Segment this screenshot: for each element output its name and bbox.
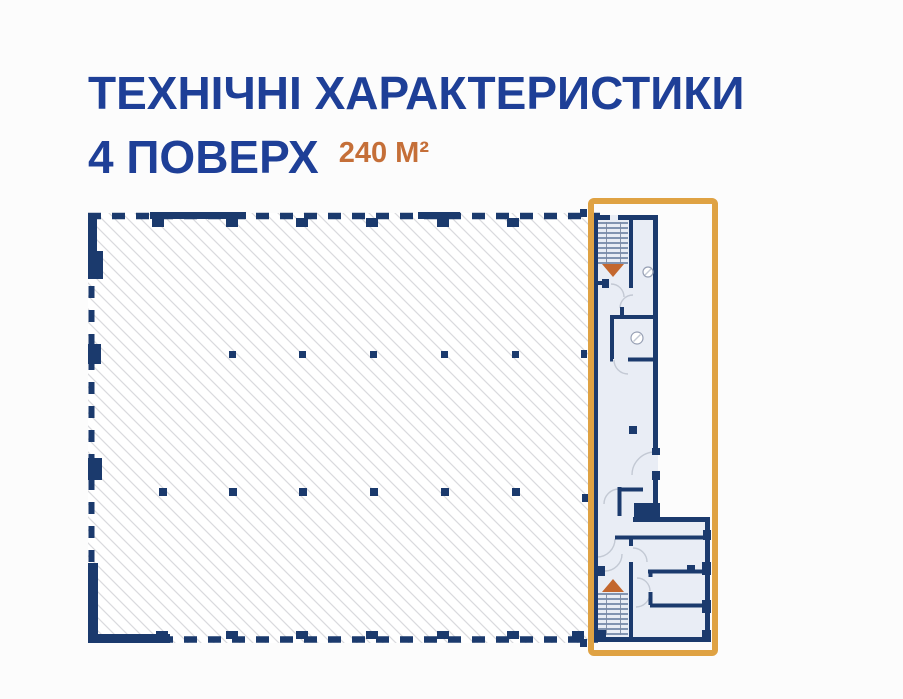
floor-plan (0, 0, 903, 699)
column-marker (629, 426, 637, 434)
hatched-floor-area (88, 209, 600, 647)
shaft-block (634, 503, 660, 518)
highlighted-section (590, 201, 715, 653)
